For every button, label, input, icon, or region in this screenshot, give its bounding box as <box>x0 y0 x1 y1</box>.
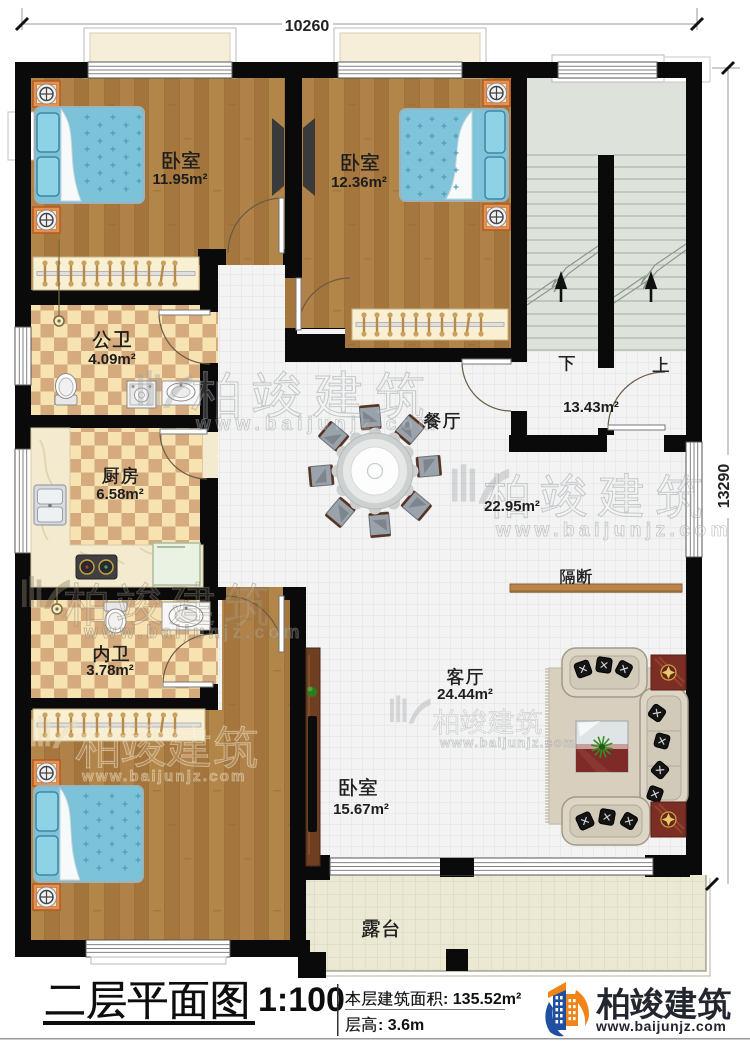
svg-text:: 3.6m: : 3.6m <box>378 1017 424 1034</box>
svg-text:1:100: 1:100 <box>258 981 345 1019</box>
svg-text:13290: 13290 <box>716 464 733 509</box>
svg-text:10260: 10260 <box>285 18 330 35</box>
svg-text:: 135.52m²: : 135.52m² <box>443 991 521 1008</box>
svg-text:www.baijunjz.com: www.baijunjz.com <box>81 768 247 785</box>
svg-text:24.44m²: 24.44m² <box>437 686 493 703</box>
svg-text:22.95m²: 22.95m² <box>484 498 540 515</box>
svg-text:11.95m²: 11.95m² <box>152 171 207 188</box>
svg-text:6.58m²: 6.58m² <box>96 486 144 503</box>
svg-text:4.09m²: 4.09m² <box>88 351 136 368</box>
svg-text:15.67m²: 15.67m² <box>333 801 389 818</box>
svg-text:www.baijunjz.com: www.baijunjz.com <box>195 414 440 435</box>
svg-text:www.baijunjz.com: www.baijunjz.com <box>439 735 576 750</box>
svg-text:3.78m²: 3.78m² <box>86 662 134 679</box>
svg-text:13.43m²: 13.43m² <box>563 399 619 416</box>
svg-text:www.baijunjz.com: www.baijunjz.com <box>83 622 303 642</box>
svg-text:12.36m²: 12.36m² <box>331 174 387 191</box>
svg-text:www.baijunjz.com: www.baijunjz.com <box>595 1018 726 1034</box>
svg-text:www.baijunjz.com: www.baijunjz.com <box>495 520 732 541</box>
